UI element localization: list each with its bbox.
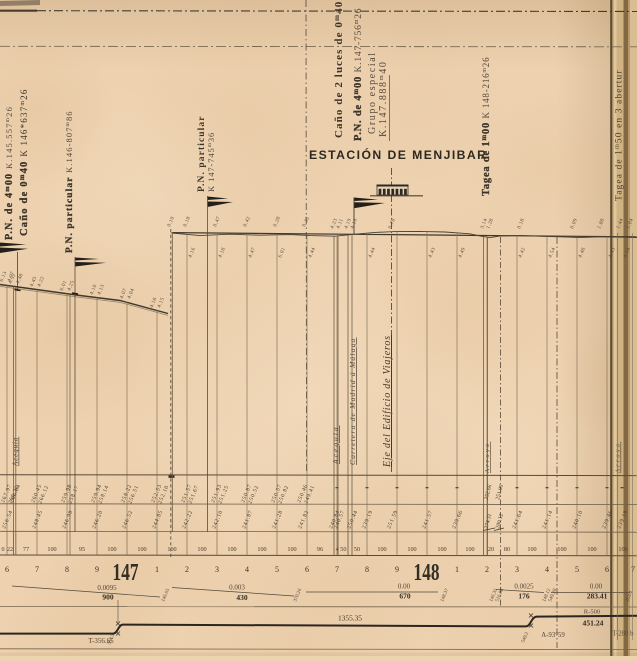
svg-text:R-500: R-500 xyxy=(584,609,601,616)
svg-text:3: 3 xyxy=(515,565,519,574)
svg-text:Arroyo: Arroyo xyxy=(484,442,491,474)
svg-text:147: 147 xyxy=(113,558,139,586)
svg-text:8: 8 xyxy=(365,565,369,574)
svg-text:100: 100 xyxy=(287,546,296,553)
svg-text:Caño de 0m40 K 146*637m26: Caño de 0m40 K 146*637m26 xyxy=(19,88,30,236)
svg-text:6: 6 xyxy=(305,565,309,574)
svg-text:96: 96 xyxy=(317,546,323,553)
svg-text:430: 430 xyxy=(236,593,248,602)
svg-text:95: 95 xyxy=(79,546,85,553)
svg-text:100: 100 xyxy=(465,546,474,553)
svg-text:Arroyo: Arroyo xyxy=(615,442,622,474)
svg-text:80: 80 xyxy=(504,546,510,553)
svg-text:283.41: 283.41 xyxy=(587,592,608,601)
svg-text:7: 7 xyxy=(631,565,635,574)
svg-text:5: 5 xyxy=(275,565,279,574)
svg-text:Tagea de 1m00 K 148-216m26: Tagea de 1m00 K 148-216m26 xyxy=(481,57,492,196)
svg-text:6: 6 xyxy=(5,565,9,574)
svg-text:4: 4 xyxy=(245,565,249,574)
svg-text:Acequia: Acequia xyxy=(12,437,20,467)
svg-text:0: 0 xyxy=(1,546,4,553)
svg-text:100: 100 xyxy=(47,546,56,553)
svg-text:670: 670 xyxy=(399,592,411,601)
svg-text:50: 50 xyxy=(354,546,360,553)
svg-text:148: 148 xyxy=(414,558,440,586)
svg-text:T-280 b: T-280 b xyxy=(612,631,634,638)
svg-text:1: 1 xyxy=(455,565,459,574)
svg-text:1355.35: 1355.35 xyxy=(338,614,362,623)
svg-text:9: 9 xyxy=(395,565,399,574)
svg-text:5: 5 xyxy=(575,565,579,574)
svg-text:P.N. de 4m00 K.145.557m26: P.N. de 4m00 K.145.557m26 xyxy=(4,106,15,240)
svg-text:Acequia: Acequia xyxy=(331,425,340,465)
svg-text:100: 100 xyxy=(257,546,266,553)
svg-text:100: 100 xyxy=(377,546,386,553)
svg-text:100: 100 xyxy=(407,546,416,553)
svg-text:7: 7 xyxy=(35,565,39,574)
svg-text:4 50: 4 50 xyxy=(336,546,347,553)
svg-text:451.24: 451.24 xyxy=(583,619,604,628)
svg-text:0.00: 0.00 xyxy=(590,583,603,591)
svg-text:900: 900 xyxy=(102,593,114,602)
svg-text:100: 100 xyxy=(107,546,116,553)
svg-text:Eje del Edificio de Viajeros: Eje del Edificio de Viajeros xyxy=(382,335,393,468)
svg-text:Grupo especial: Grupo especial xyxy=(367,51,378,134)
svg-text:0.0025: 0.0025 xyxy=(514,583,534,591)
svg-text:100: 100 xyxy=(197,546,206,553)
svg-text:100: 100 xyxy=(167,546,176,553)
svg-text:Caño de 2 luces de 0m40: Caño de 2 luces de 0m40 xyxy=(333,1,345,138)
svg-text:7: 7 xyxy=(335,565,339,574)
svg-text:100: 100 xyxy=(227,546,236,553)
svg-text:ESTACIÓN DE MENJIBAR: ESTACIÓN DE MENJIBAR xyxy=(309,147,487,162)
svg-text:20: 20 xyxy=(488,546,494,553)
svg-text:77: 77 xyxy=(23,546,29,553)
svg-text:P.N. particular K.146-807m86: P.N. particular K.146-807m86 xyxy=(64,110,75,253)
svg-text:Carretera de Madrid á Málaga: Carretera de Madrid á Málaga xyxy=(348,338,357,465)
svg-text:100: 100 xyxy=(557,546,566,553)
svg-text:9: 9 xyxy=(95,565,99,574)
svg-text:176: 176 xyxy=(518,592,530,601)
svg-text:3: 3 xyxy=(215,565,219,574)
svg-text:22: 22 xyxy=(7,546,13,553)
svg-text:4: 4 xyxy=(545,565,549,574)
svg-text:2: 2 xyxy=(485,565,489,574)
svg-text:K 147-745m36: K 147-745m36 xyxy=(206,132,216,192)
svg-text:0.00: 0.00 xyxy=(398,583,411,591)
svg-text:1: 1 xyxy=(155,565,159,574)
svg-text:K.147.888m40: K.147.888m40 xyxy=(378,61,389,137)
svg-text:6: 6 xyxy=(605,565,609,574)
svg-text:2: 2 xyxy=(185,565,189,574)
svg-text:0.003: 0.003 xyxy=(229,584,245,592)
svg-text:100: 100 xyxy=(137,546,146,553)
svg-text:0.0095: 0.0095 xyxy=(97,584,117,592)
svg-text:100: 100 xyxy=(437,546,446,553)
svg-text:A-93°59: A-93°59 xyxy=(541,632,565,639)
svg-text:P.N. de 4m00 K.147-756m26: P.N. de 4m00 K.147-756m26 xyxy=(353,8,364,141)
svg-text:8: 8 xyxy=(65,565,69,574)
svg-text:100: 100 xyxy=(587,546,596,553)
svg-text:100: 100 xyxy=(527,546,536,553)
svg-text:Tagea de 1m50 en 3 abertur: Tagea de 1m50 en 3 abertur xyxy=(615,69,625,201)
svg-text:100: 100 xyxy=(618,546,627,553)
